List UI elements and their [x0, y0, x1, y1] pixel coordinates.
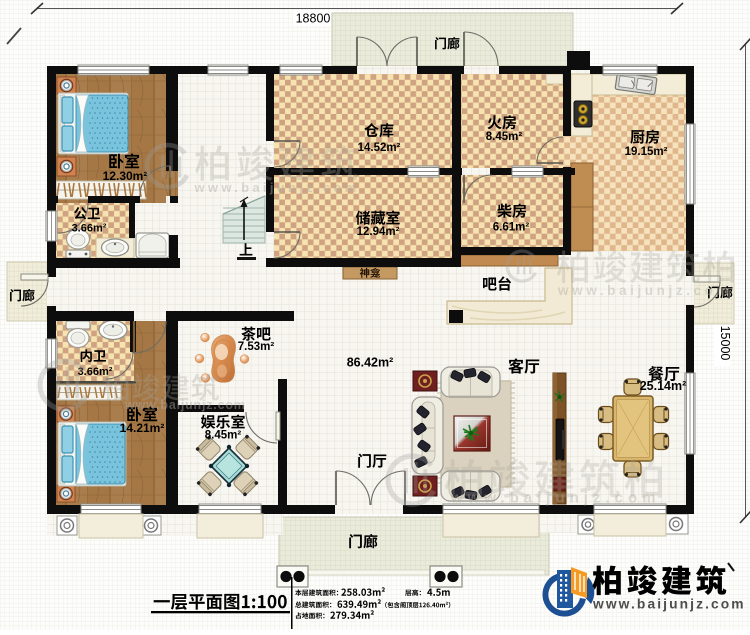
- svg-text:7.53m²: 7.53m²: [238, 341, 275, 353]
- svg-text:15000: 15000: [718, 326, 732, 361]
- svg-text:www.baijunjz.com: www.baijunjz.com: [450, 489, 660, 506]
- svg-text:19.15m²: 19.15m²: [625, 146, 668, 158]
- svg-text:12.30m²: 12.30m²: [103, 169, 148, 183]
- svg-text:12.94m²: 12.94m²: [357, 226, 400, 238]
- svg-text:www.baijunjz.com: www.baijunjz.com: [194, 180, 360, 195]
- svg-text:www.baijunjz.com: www.baijunjz.com: [557, 283, 732, 298]
- svg-text:www.baijunjz.com: www.baijunjz.com: [592, 596, 746, 611]
- svg-text:14.21m²: 14.21m²: [120, 421, 165, 435]
- svg-text:18800: 18800: [296, 11, 331, 25]
- svg-text:25.14m²: 25.14m²: [640, 379, 687, 393]
- svg-text:8.45m²: 8.45m²: [205, 430, 242, 442]
- svg-text:3.66m²: 3.66m²: [72, 222, 107, 234]
- svg-text:8.45m²: 8.45m²: [486, 131, 523, 143]
- svg-text:14.52m²: 14.52m²: [358, 142, 401, 154]
- svg-text:www.baijunjz.com: www.baijunjz.com: [124, 398, 246, 412]
- svg-text:86.42m²: 86.42m²: [347, 355, 394, 369]
- svg-text:6.61m²: 6.61m²: [493, 222, 530, 234]
